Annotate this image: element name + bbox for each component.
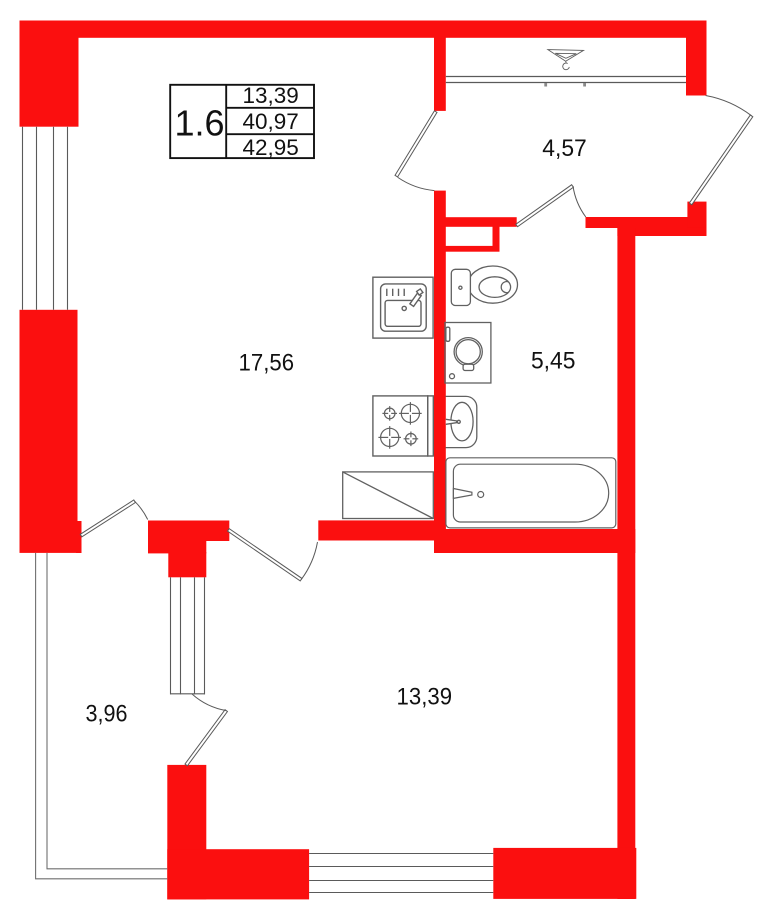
svg-text:4,57: 4,57: [542, 135, 587, 162]
svg-text:5,45: 5,45: [531, 347, 576, 374]
svg-text:13,39: 13,39: [242, 83, 298, 108]
svg-text:3,96: 3,96: [86, 701, 128, 728]
svg-text:40,97: 40,97: [242, 109, 298, 134]
svg-text:13,39: 13,39: [397, 684, 453, 711]
svg-text:17,56: 17,56: [239, 350, 295, 377]
svg-text:42,95: 42,95: [242, 135, 298, 160]
svg-text:1.6: 1.6: [174, 102, 224, 143]
